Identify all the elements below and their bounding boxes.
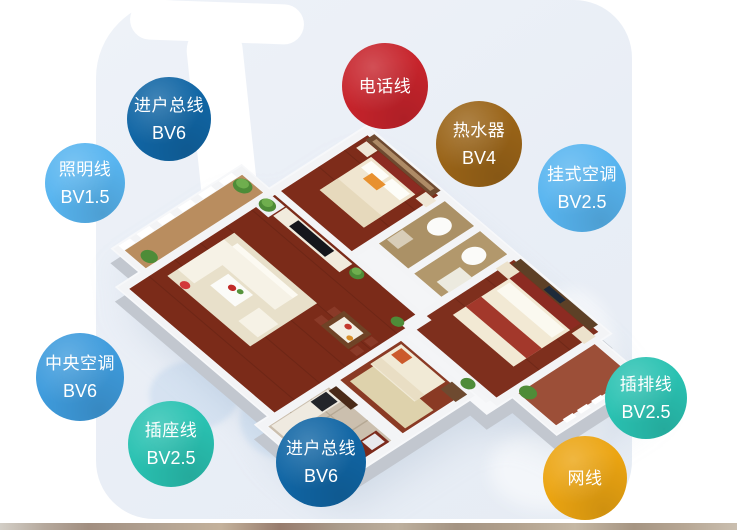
label-bubble-socket-line: 插座线 BV2.5 bbox=[128, 401, 214, 487]
wiring-infographic-page: 进户总线 BV6 照明线 BV1.5 电话线 热水器 BV4 挂式空调 BV2.… bbox=[0, 0, 737, 530]
label-bubble-wall-ac: 挂式空调 BV2.5 bbox=[538, 144, 626, 232]
bubble-spec: BV2.5 bbox=[557, 193, 606, 211]
bubble-label: 插座线 bbox=[145, 422, 198, 439]
label-bubble-central-ac: 中央空调 BV6 bbox=[36, 333, 124, 421]
bubble-label: 中央空调 bbox=[45, 355, 115, 372]
bubble-label: 挂式空调 bbox=[547, 166, 617, 183]
bubble-label: 网线 bbox=[568, 470, 603, 487]
bubble-spec: BV2.5 bbox=[146, 449, 195, 467]
bubble-label: 电话线 bbox=[359, 78, 412, 95]
bubble-spec: BV2.5 bbox=[621, 403, 670, 421]
bubble-spec: BV6 bbox=[152, 124, 186, 142]
bubble-label: 热水器 bbox=[453, 122, 506, 139]
bubble-label: 进户总线 bbox=[286, 440, 356, 457]
label-bubble-power-strip-line: 插排线 BV2.5 bbox=[605, 357, 687, 439]
label-bubble-entry-main-line-bottom: 进户总线 BV6 bbox=[276, 417, 366, 507]
bubble-label: 进户总线 bbox=[134, 97, 204, 114]
label-bubble-telephone-line: 电话线 bbox=[342, 43, 428, 129]
label-bubble-entry-main-line-top: 进户总线 BV6 bbox=[127, 77, 211, 161]
label-bubble-water-heater: 热水器 BV4 bbox=[436, 101, 522, 187]
label-bubble-network-cable: 网线 bbox=[543, 436, 627, 520]
bubble-spec: BV4 bbox=[462, 149, 496, 167]
bubble-spec: BV6 bbox=[304, 467, 338, 485]
bubble-spec: BV1.5 bbox=[60, 188, 109, 206]
label-bubble-lighting-line: 照明线 BV1.5 bbox=[45, 143, 125, 223]
next-section-sliver bbox=[0, 523, 737, 530]
bubble-spec: BV6 bbox=[63, 382, 97, 400]
bubble-label: 照明线 bbox=[59, 161, 112, 178]
bubble-label: 插排线 bbox=[620, 376, 673, 393]
